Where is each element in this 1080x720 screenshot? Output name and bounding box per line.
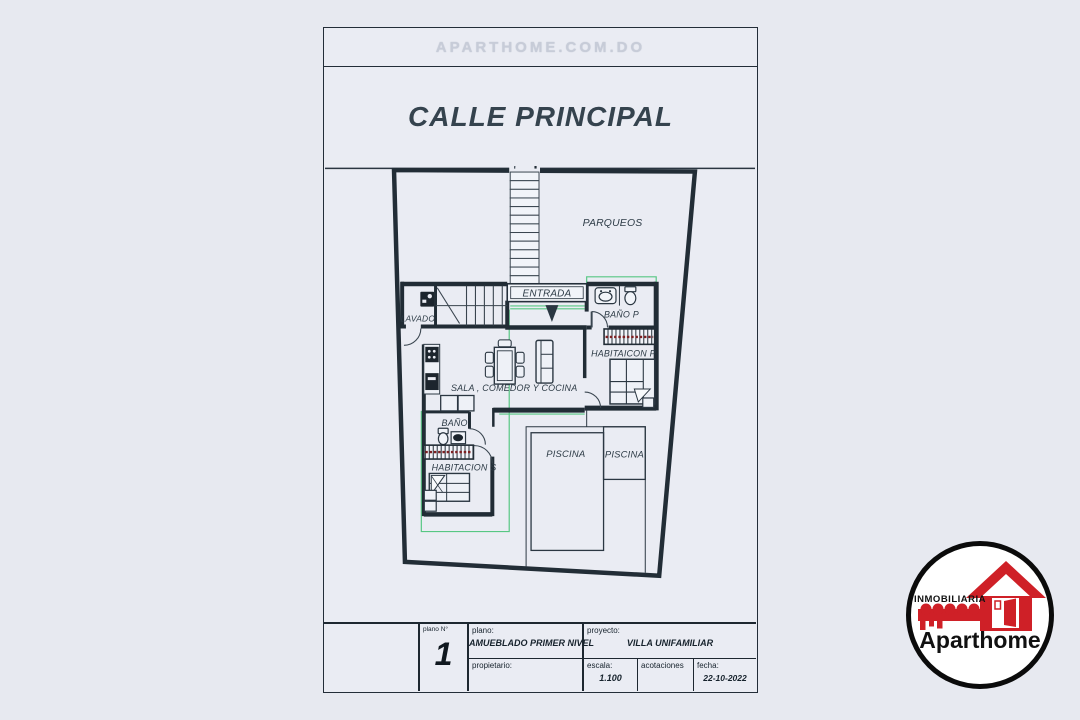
toilet-icon (625, 287, 636, 292)
logo-graphic: INMOBILIARIA Aparthome (906, 541, 1054, 689)
title-block-plan-number-cell: plano N° 1 (420, 624, 469, 691)
fridge-icon (425, 373, 438, 390)
aparthome-logo: INMOBILIARIA Aparthome (906, 541, 1054, 689)
title-block-propietario-cell: propietario: (469, 659, 584, 691)
exterior-stairs (509, 166, 540, 285)
washer-icon (420, 292, 434, 307)
room-label-bano-p: BAÑO P (604, 310, 639, 320)
escala-value: 1.100 (584, 673, 637, 683)
logo-brand-regular: Apart (919, 627, 979, 653)
title-block-escala-cell: escala: 1.100 (584, 659, 638, 691)
title-block-fecha-cell: fecha: 22-10-2022 (694, 659, 756, 691)
floor-plan-drawing: PARQUEOS ENTRADA LAVADO BAÑO P HABITAICO… (324, 166, 756, 623)
screenshot-canvas: APARTHOME.COM.DO CALLE PRINCIPAL (0, 0, 1080, 720)
room-label-habitacion-s: HABITACION S (432, 462, 497, 472)
title-block-acotaciones-cell: acotaciones (638, 659, 694, 691)
title-block-plano-cell: plano: AMUEBLADO PRIMER NIVEL (469, 624, 584, 659)
nightstand-icon (643, 398, 654, 407)
stove-icon (425, 347, 438, 362)
room-label-entrada: ENTRADA (523, 289, 572, 300)
room-label-piscina-b: PISCINA (605, 449, 644, 460)
room-label-lavado: LAVADO (401, 314, 436, 324)
bano-s-fixtures (438, 428, 465, 444)
logo-top-text: INMOBILIARIA (914, 594, 986, 605)
plano-n-label: plano N° (423, 626, 448, 633)
acotaciones-label: acotaciones (641, 661, 684, 670)
room-label-piscina-a: PISCINA (546, 448, 585, 459)
title-block: plano N° 1 plano: AMUEBLADO PRIMER NIVEL… (324, 622, 756, 691)
fecha-value: 22-10-2022 (694, 673, 756, 683)
street-label: CALLE PRINCIPAL (408, 101, 673, 133)
logo-brand-text: Aparthome (919, 627, 1040, 653)
room-label-bano-s: BAÑO (442, 418, 468, 428)
street-band: CALLE PRINCIPAL (324, 67, 757, 166)
habitacion-s-furniture (424, 445, 474, 511)
fecha-label: fecha: (697, 661, 719, 670)
room-label-parqueos: PARQUEOS (583, 218, 643, 229)
plano-number: 1 (420, 636, 467, 673)
bano-p-fixtures (595, 286, 636, 306)
sofa-icon (536, 340, 553, 383)
entry-arrow-icon (545, 305, 558, 322)
title-block-proyecto-cell: proyecto: VILLA UNIFAMILIAR (584, 624, 756, 659)
plan-sheet: APARTHOME.COM.DO CALLE PRINCIPAL (323, 27, 758, 693)
room-label-habitacion-p: HABITAICON P (591, 348, 656, 358)
piscina-area (526, 410, 645, 573)
title-block-empty-cell (324, 624, 420, 691)
plano-value: AMUEBLADO PRIMER NIVEL (469, 638, 582, 648)
escala-label: escala: (587, 661, 612, 670)
watermark-band: APARTHOME.COM.DO (324, 28, 757, 67)
lavado-room (420, 292, 434, 307)
propietario-label: propietario: (472, 661, 512, 670)
habitacion-p-furniture (604, 329, 655, 407)
proyecto-value: VILLA UNIFAMILIAR (584, 638, 756, 648)
interior-stair (436, 286, 508, 326)
room-label-sala: SALA , COMEDOR Y COCINA (451, 383, 577, 393)
watermark-text: APARTHOME.COM.DO (436, 39, 645, 56)
logo-brand-bold: home (979, 627, 1040, 653)
proyecto-label: proyecto: (587, 626, 620, 635)
sala-furniture (424, 340, 553, 411)
plano-label: plano: (472, 626, 494, 635)
